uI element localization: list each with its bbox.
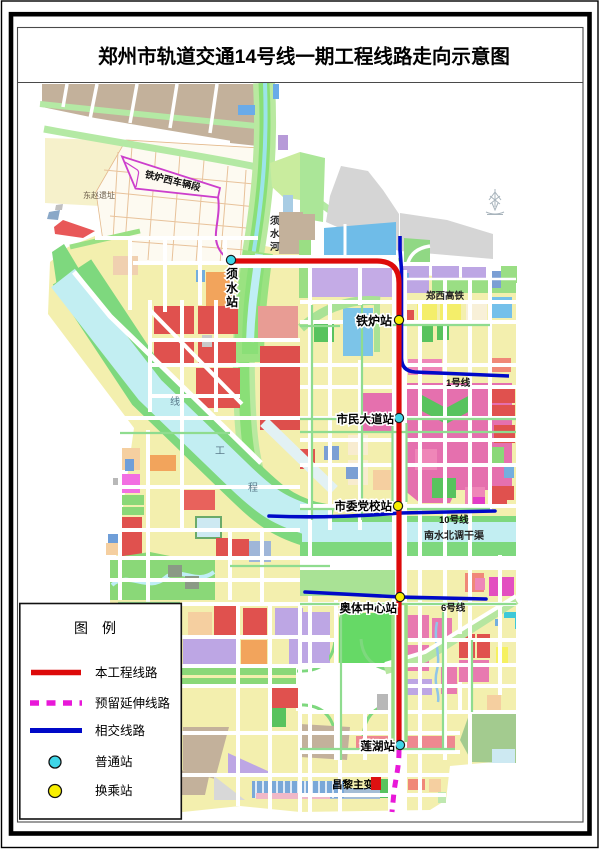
svg-text:市委党校站: 市委党校站 [335, 499, 393, 513]
svg-text:线: 线 [170, 395, 180, 408]
svg-text:莲湖站: 莲湖站 [361, 739, 396, 753]
svg-text:工: 工 [215, 446, 225, 457]
svg-text:须水河: 须水河 [269, 215, 280, 253]
svg-text:相交线路: 相交线路 [95, 723, 146, 738]
svg-text:6号线: 6号线 [441, 602, 466, 614]
svg-text:图 例: 图 例 [74, 620, 116, 636]
svg-text:程: 程 [248, 482, 258, 494]
svg-text:预留延伸线路: 预留延伸线路 [95, 696, 171, 711]
svg-text:东赵遗址: 东赵遗址 [83, 190, 115, 200]
svg-text:郑西高铁: 郑西高铁 [426, 290, 465, 302]
svg-text:昌黎主变: 昌黎主变 [332, 778, 374, 791]
svg-text:10号线: 10号线 [439, 514, 469, 526]
svg-text:本工程线路: 本工程线路 [95, 665, 158, 680]
svg-text:须水站: 须水站 [226, 267, 239, 309]
svg-text:普通站: 普通站 [95, 755, 133, 769]
svg-text:郑州市轨道交通14号线一期工程线路走向示意图: 郑州市轨道交通14号线一期工程线路走向示意图 [98, 45, 510, 68]
svg-text:市民大道站: 市民大道站 [337, 412, 395, 426]
svg-text:奥体中心站: 奥体中心站 [339, 601, 398, 615]
svg-text:铁炉站: 铁炉站 [356, 313, 392, 328]
svg-text:换乘站: 换乘站 [95, 784, 133, 798]
svg-text:1号线: 1号线 [446, 377, 471, 389]
svg-text:南水北调干渠: 南水北调干渠 [424, 529, 485, 542]
